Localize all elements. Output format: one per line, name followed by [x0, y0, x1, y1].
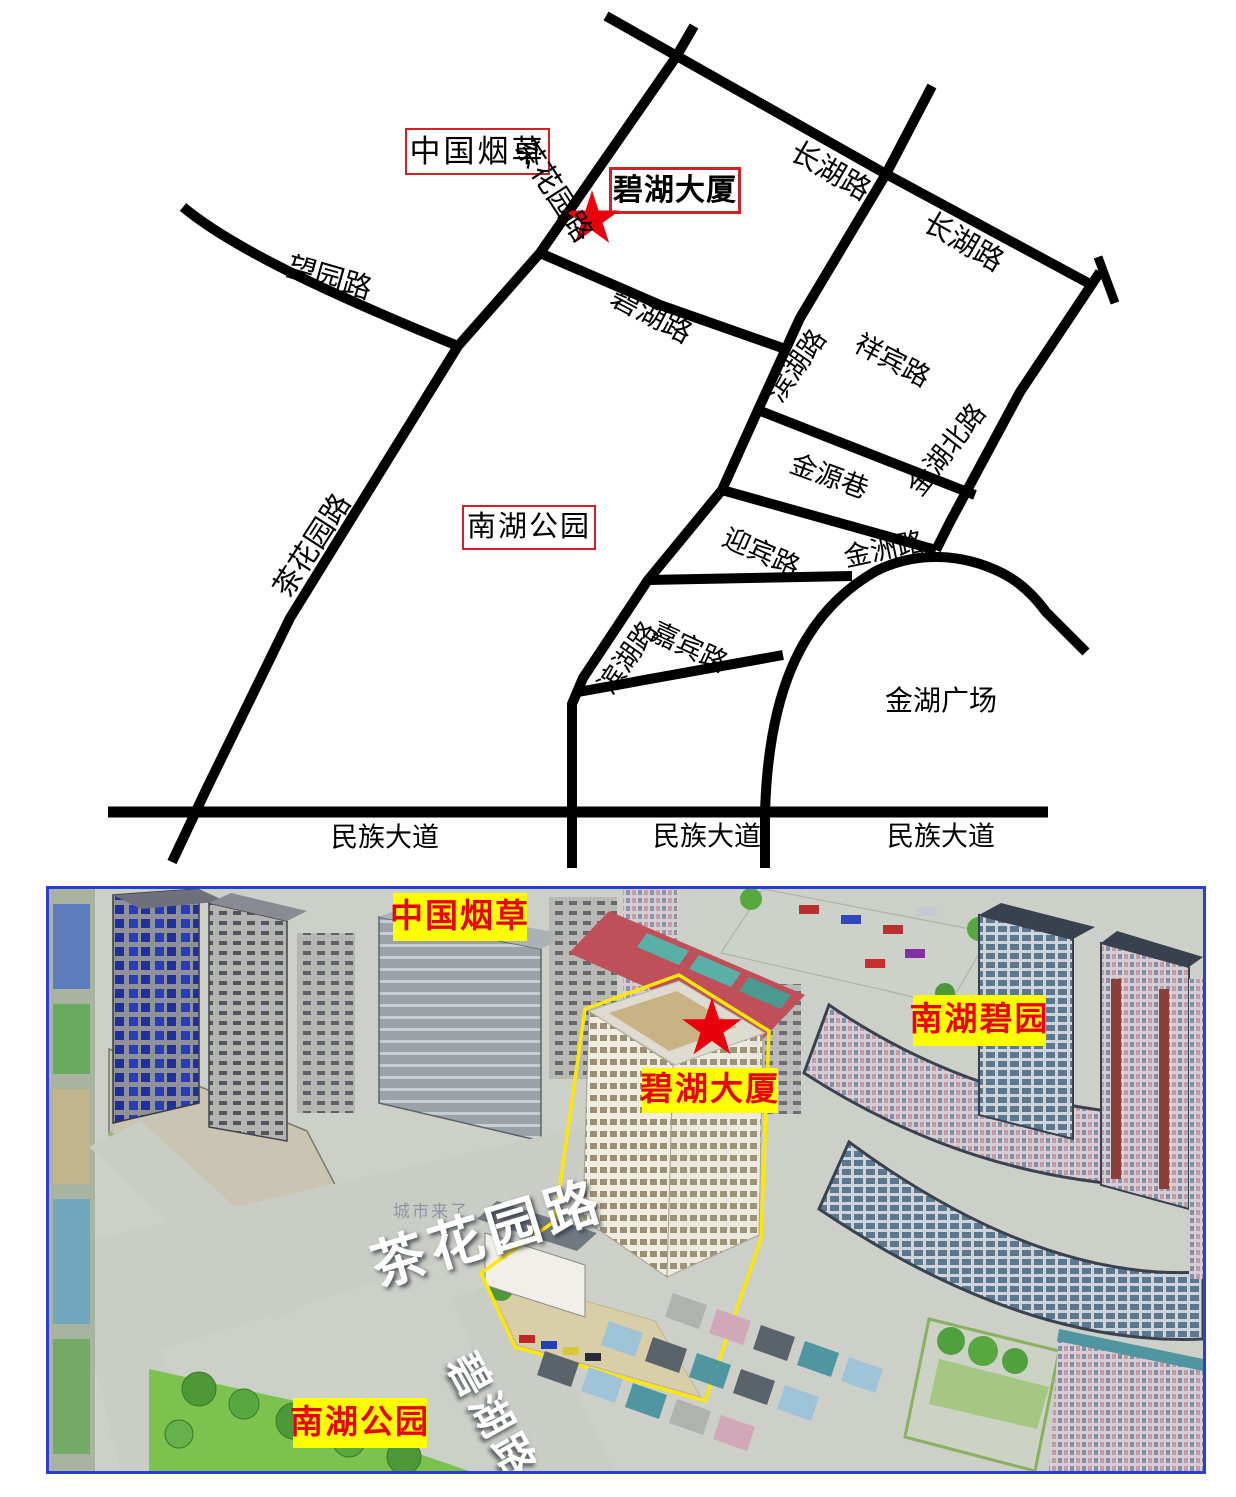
- road-yingbin: [648, 576, 852, 580]
- tag-china-tobacco: 中国烟草: [393, 893, 527, 941]
- star-icon: ★: [677, 989, 747, 1067]
- area-label-jinhu-plaza: 金湖广场: [885, 688, 997, 716]
- left-mosaic-strip: [49, 889, 95, 1471]
- tag-bihu-building: 碧湖大厦: [642, 1068, 778, 1113]
- tag-label: 中国烟草: [390, 901, 530, 934]
- location-map-page: 中国烟草 碧湖大厦 南湖公园 ★ 茶花园路 茶花园路 望园路 碧湖路 长湖路 长…: [0, 0, 1236, 1497]
- landmark-nanhu-park: 南湖公园: [462, 505, 596, 550]
- tag-label: 碧湖大厦: [640, 1074, 780, 1107]
- tag-label: 南湖碧园: [910, 1004, 1050, 1037]
- landmark-label: 碧湖大厦: [613, 176, 737, 206]
- landmark-label: 南湖公园: [467, 513, 591, 542]
- road-network: [0, 0, 1236, 880]
- city-illustration: [49, 889, 1203, 1471]
- road-label-minzu-3: 民族大道: [887, 824, 995, 851]
- schematic-road-map: 中国烟草 碧湖大厦 南湖公园 ★ 茶花园路 茶花园路 望园路 碧湖路 长湖路 长…: [0, 0, 1236, 880]
- tag-nanhu-park: 南湖公园: [293, 1398, 427, 1448]
- road-label-minzu-2: 民族大道: [653, 824, 761, 851]
- tag-nanhu-biyuan: 南湖碧园: [913, 995, 1046, 1046]
- road-label-minzu-1: 民族大道: [331, 825, 439, 852]
- aerial-illustration-frame: 城市来了 ★ 中国烟草 南湖碧园 碧湖大厦 南湖公园 茶花园路 碧湖路: [46, 886, 1206, 1474]
- landmark-bihu-building: 碧湖大厦: [609, 167, 741, 214]
- tag-label: 南湖公园: [290, 1407, 430, 1440]
